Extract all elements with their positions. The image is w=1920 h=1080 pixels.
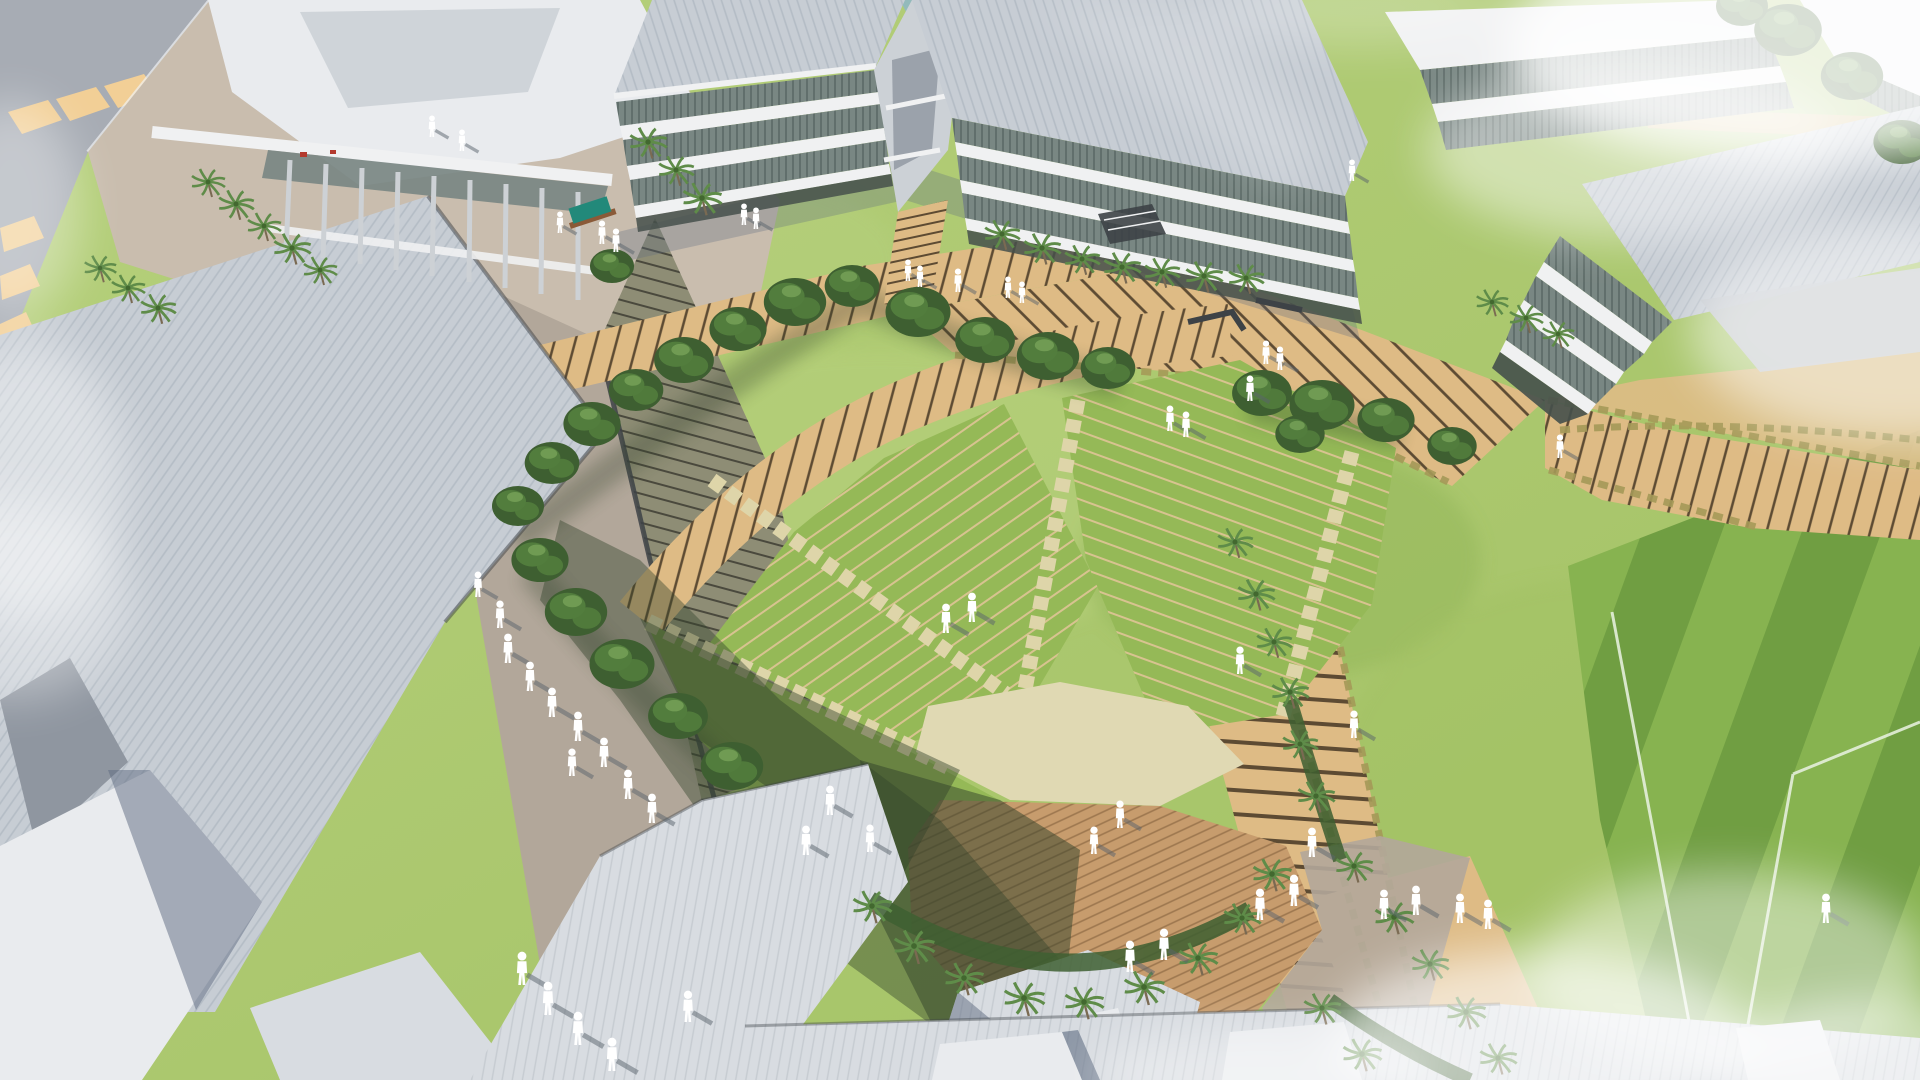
tree — [709, 307, 766, 351]
tree — [1232, 370, 1292, 416]
tree — [563, 402, 620, 446]
tree — [511, 538, 568, 582]
tree — [955, 317, 1015, 363]
fog-patch — [1425, 60, 1845, 240]
tree — [1017, 332, 1079, 380]
tree — [1081, 347, 1136, 389]
column — [432, 176, 434, 276]
tree — [590, 249, 634, 283]
column — [469, 180, 470, 282]
tree — [590, 639, 655, 689]
tree — [1357, 398, 1414, 442]
tree — [654, 337, 714, 383]
campus-aerial-render: Campus masterplan aerial rendering — [0, 0, 1920, 1080]
column — [360, 168, 362, 264]
tree — [1427, 427, 1476, 465]
tree — [648, 693, 708, 739]
tree — [545, 588, 607, 636]
tree — [825, 265, 880, 307]
render-canvas: Campus masterplan aerial rendering — [0, 0, 1920, 1080]
tree — [764, 278, 826, 326]
column — [541, 188, 542, 294]
red-accent — [330, 150, 336, 154]
tree — [609, 369, 664, 411]
column — [323, 164, 326, 258]
tree — [886, 287, 951, 337]
tree — [701, 742, 763, 790]
tree — [1275, 415, 1324, 453]
tree — [492, 486, 544, 526]
tree — [525, 442, 580, 484]
column — [505, 184, 506, 288]
red-accent — [300, 152, 307, 157]
column — [396, 172, 398, 270]
